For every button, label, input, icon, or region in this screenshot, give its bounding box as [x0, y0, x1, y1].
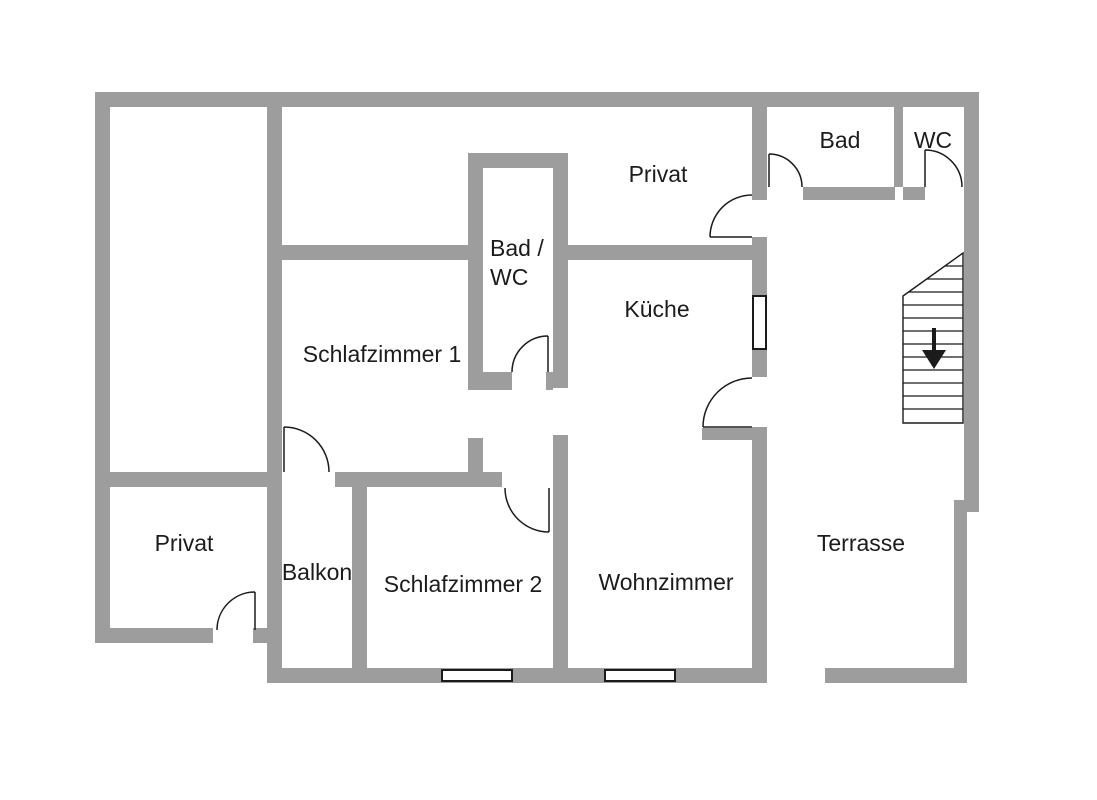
door-privat-top	[710, 195, 752, 237]
wall-badwc-right	[553, 168, 568, 388]
door-balkon	[284, 427, 329, 472]
doors	[217, 150, 962, 630]
wall-h245-west	[282, 245, 468, 260]
wall-wohnzimmer-west	[553, 435, 568, 668]
door-privat-unten	[217, 592, 255, 630]
wall-bad-wc-divider	[894, 107, 903, 187]
door-schlafzimmer2	[505, 488, 549, 532]
wall-east-corridor-upper	[752, 107, 767, 200]
wall-wc-bottom	[903, 187, 925, 200]
door-bad	[769, 154, 802, 187]
room-label-privat-unten: Privat	[155, 530, 214, 556]
window-kueche	[753, 296, 766, 349]
wall-bad-bottom	[803, 187, 895, 200]
door-kueche	[703, 378, 752, 427]
wall-outer-bottom	[267, 668, 767, 683]
wall-privat-door-stub	[253, 628, 267, 643]
wall-right-step	[954, 500, 979, 512]
room-label-wohnzimmer: Wohnzimmer	[598, 569, 733, 595]
door-badwc	[512, 336, 548, 372]
room-label-badwc-line2: WC	[490, 264, 528, 290]
wall-badwc-left	[468, 168, 483, 390]
room-label-wc: WC	[914, 127, 952, 153]
window-wohnzimmer	[605, 670, 675, 681]
wall-outer-left	[95, 92, 110, 643]
wall-spine-left	[267, 107, 282, 668]
room-label-bad: Bad	[820, 127, 861, 153]
staircase	[903, 253, 963, 423]
room-label-badwc-line1: Bad /	[490, 235, 544, 261]
room-label-schlafzimmer1: Schlafzimmer 1	[303, 341, 461, 367]
wall-h472-west	[95, 472, 267, 487]
window-schlafzimmer2	[442, 670, 512, 681]
wall-outer-right-lower	[954, 512, 967, 683]
room-label-kueche: Küche	[624, 296, 689, 322]
wall-badwc-top	[468, 153, 568, 168]
room-label-terrasse: Terrasse	[817, 530, 905, 556]
door-wc	[925, 150, 962, 187]
wall-outer-top	[95, 92, 979, 107]
wall-kueche-stub	[702, 428, 752, 440]
room-label-balkon: Balkon	[282, 559, 352, 585]
wall-privat-bottom	[95, 628, 213, 643]
wall-h472-east	[335, 472, 502, 487]
room-label-privat-top: Privat	[629, 161, 688, 187]
wall-badwc-bottom-west	[483, 372, 512, 390]
wall-outer-right-upper	[964, 92, 979, 506]
wall-terrasse-bottom	[825, 668, 967, 683]
windows	[442, 296, 766, 681]
wall-badwc-bottom-east	[546, 372, 553, 390]
floor-plan: Privat Bad WC Bad / WC Küche Schlafzimme…	[0, 0, 1097, 800]
wall-balkon-east	[352, 487, 367, 668]
wall-h245-east	[568, 245, 767, 260]
floor-plan-drawing: Privat Bad WC Bad / WC Küche Schlafzimme…	[0, 0, 1097, 800]
wall-east-corridor-lower	[752, 427, 767, 668]
room-label-schlafzimmer2: Schlafzimmer 2	[384, 571, 542, 597]
